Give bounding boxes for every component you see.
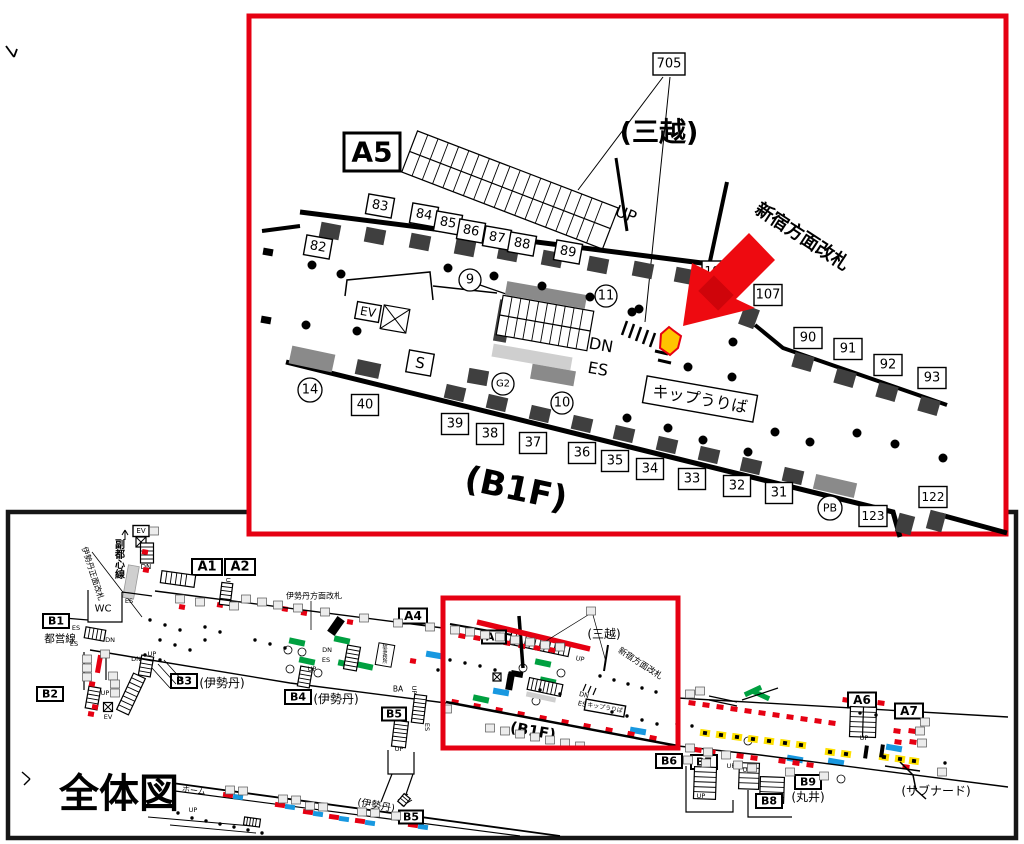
label-chip: 82 xyxy=(303,235,332,259)
map-label: BA xyxy=(393,685,404,694)
label-chip: 34 xyxy=(637,459,664,480)
circled-number-text: 14 xyxy=(302,383,319,398)
circled-number-text: 9 xyxy=(466,273,474,288)
map-label: UP xyxy=(410,686,418,695)
exit-a5-label-text: A5 xyxy=(351,136,392,169)
map-label: UP xyxy=(697,792,706,800)
subnade-label: (サブナード) xyxy=(901,783,970,798)
stairs xyxy=(391,720,408,748)
label-chip-text: 90 xyxy=(800,331,817,346)
label-chip: 93 xyxy=(918,368,946,389)
label-chip-text: 38 xyxy=(482,427,499,442)
label-chip-text: 40 xyxy=(357,398,374,413)
exit-a6-label-text: A6 xyxy=(853,693,871,707)
label-chip-text: 92 xyxy=(880,358,897,373)
label-chip-text: 88 xyxy=(513,235,532,253)
label-chip: 90 xyxy=(794,328,822,349)
stairs xyxy=(411,694,426,723)
label-chip: 86 xyxy=(456,219,485,243)
label-chip-text: 34 xyxy=(642,462,659,477)
label-chip: 122 xyxy=(919,487,947,508)
label-chip: 31 xyxy=(766,483,793,504)
exit-b9-label-text: B9 xyxy=(800,776,816,789)
station-office-label: 駅事務所 xyxy=(382,644,387,665)
map-label: UP xyxy=(308,665,317,673)
map-label: EV xyxy=(104,713,113,721)
exit-b4-label: B4 xyxy=(285,690,311,704)
circled-number-text: G2 xyxy=(496,379,510,390)
label-chip: 39 xyxy=(442,414,469,435)
gate-number-11: 11 xyxy=(595,285,617,307)
exit-b9-label: B9 xyxy=(795,775,821,789)
sign-705-text: 705 xyxy=(657,57,682,72)
label-chip-text: 36 xyxy=(574,446,591,461)
map-label: DN xyxy=(105,636,115,644)
label-chip-text: 33 xyxy=(684,472,701,487)
label-chip: 38 xyxy=(477,424,504,445)
label-chip: 83 xyxy=(365,194,394,218)
circled-number-text: 10 xyxy=(554,396,571,411)
circled-number-text: 11 xyxy=(598,289,615,304)
label-chip-text: 39 xyxy=(447,417,464,432)
label-chip-text: 84 xyxy=(415,206,434,224)
label-chip: 123 xyxy=(859,506,887,527)
label-chip-text: 82 xyxy=(309,238,328,256)
stairs-a6 xyxy=(849,707,876,738)
sign-705: 705 xyxy=(653,53,685,75)
elevator-label-text: EV xyxy=(136,527,145,535)
exit-b2-label-text: B2 xyxy=(42,688,58,701)
exit-a5-label: A5 xyxy=(344,133,400,171)
map-label: UP xyxy=(148,650,157,658)
exit-b1-label-text: B1 xyxy=(48,615,64,628)
label-chip-text: 83 xyxy=(371,197,390,215)
label-chip-text: 123 xyxy=(862,509,885,523)
elevator-icon xyxy=(493,673,501,681)
exit-b5-label-text: B5 xyxy=(386,708,402,721)
mitsukoshi-label: (三越) xyxy=(620,118,699,149)
label-chip: 33 xyxy=(679,469,706,490)
screenshot-root: 全体図EVDN副都心線伊勢丹正面改札ESWCB1都営線ESESDNB2UPEVA… xyxy=(0,0,1024,844)
exit-a4-label: A4 xyxy=(399,609,427,624)
wc-label: WC xyxy=(95,604,112,615)
circled-number-text: PB xyxy=(823,502,837,515)
elevator-icon xyxy=(104,703,113,712)
label-chip-text: 35 xyxy=(607,454,624,469)
label-chip: 87 xyxy=(482,226,511,250)
label-chip: S xyxy=(406,350,434,376)
label-chip: 89 xyxy=(553,240,582,264)
label-chip: 36 xyxy=(569,443,596,464)
elevator-label-text: EV xyxy=(359,304,378,321)
label-chip-text: 107 xyxy=(756,288,781,303)
overview-title: 全体図 xyxy=(58,771,179,817)
isetan-gate-label: 伊勢丹方面改札 xyxy=(286,591,342,601)
gate-number-pb: PB xyxy=(818,496,842,520)
isetan-label-b3: (伊勢丹) xyxy=(199,675,244,690)
exit-a6-label: A6 xyxy=(848,693,876,708)
map-label: UP xyxy=(395,745,404,753)
label-chip: 37 xyxy=(520,433,547,454)
label-chip: 35 xyxy=(602,451,629,472)
mitsukoshi-mini-label: (三越) xyxy=(587,627,620,641)
elevator-label: EV xyxy=(355,302,382,323)
map-label: ES xyxy=(125,597,133,605)
exit-a4-label-text: A4 xyxy=(404,609,422,623)
label-chip-text: 93 xyxy=(924,371,941,386)
marui-label: (丸井) xyxy=(791,790,824,804)
label-chip-text: 91 xyxy=(840,342,857,357)
label-chip: 91 xyxy=(834,339,862,360)
exit-a1-label-text: A1 xyxy=(197,560,216,575)
map-label: ES xyxy=(72,624,80,632)
gate-number-10: 10 xyxy=(551,392,573,414)
exit-a2-label-text: A2 xyxy=(230,560,249,575)
label-chip: 107 xyxy=(754,285,782,306)
label-chip: 40 xyxy=(352,395,379,416)
map-label: DN xyxy=(131,655,141,663)
label-chip-text: 86 xyxy=(462,222,481,240)
map-label: ES xyxy=(70,640,78,648)
fukutoshin-line-label: 副都心線 xyxy=(114,538,125,581)
exit-b8-label-text: B8 xyxy=(761,795,777,808)
map-label: ES xyxy=(586,358,609,380)
exit-a1-label: A1 xyxy=(192,559,222,575)
exit-b8-label: B8 xyxy=(756,794,782,808)
stairs xyxy=(244,817,261,827)
elevator-icon xyxy=(380,305,410,333)
exit-b2-label: B2 xyxy=(37,687,63,701)
detail-panel: 705(三越)A5UP8283848586878889新宿方面改札1061079… xyxy=(249,16,1007,537)
station-map: 全体図EVDN副都心線伊勢丹正面改札ESWCB1都営線ESESDNB2UPEVA… xyxy=(0,0,1024,844)
map-label: DN xyxy=(322,646,332,654)
label-chip-text: 89 xyxy=(559,243,578,261)
exit-b4-label-text: B4 xyxy=(290,691,306,704)
exit-b5-label: B5 xyxy=(382,708,406,721)
map-label: ES xyxy=(423,723,431,731)
gate-number-9: 9 xyxy=(459,269,481,291)
exit-b6-label: B6 xyxy=(656,754,682,768)
map-label: UP xyxy=(101,689,110,697)
isetan-label-b4: (伊勢丹) xyxy=(313,691,358,706)
label-chip-text: 122 xyxy=(922,490,945,504)
exit-a2-label: A2 xyxy=(225,559,255,575)
label-chip-text: 31 xyxy=(771,486,788,501)
label-chip: 88 xyxy=(507,232,536,256)
exit-b6-label-text: B6 xyxy=(661,755,677,768)
label-chip-text: 87 xyxy=(488,229,507,247)
exit-b3-label: B3 xyxy=(171,674,197,688)
gate-number-14: 14 xyxy=(298,378,322,402)
label-chip-text: 85 xyxy=(439,214,458,232)
elevator-label: EV xyxy=(133,526,149,537)
label-chip-text: 37 xyxy=(525,436,542,451)
label-chip: 92 xyxy=(874,355,902,376)
exit-b1-label: B1 xyxy=(43,614,69,628)
map-label: ES xyxy=(322,656,330,664)
exit-a7-label: A7 xyxy=(895,704,923,719)
exit-a7-label-text: A7 xyxy=(900,704,918,718)
exit-b5b-label: B5 xyxy=(399,811,423,824)
label-chip-text: 32 xyxy=(729,479,746,494)
map-label: UP xyxy=(860,734,869,742)
label-chip: 32 xyxy=(724,476,751,497)
map-label: UP xyxy=(189,806,198,814)
exit-b5b-label-text: B5 xyxy=(403,811,419,824)
gate-number-g2: G2 xyxy=(492,373,514,395)
stray-mark xyxy=(6,46,17,57)
